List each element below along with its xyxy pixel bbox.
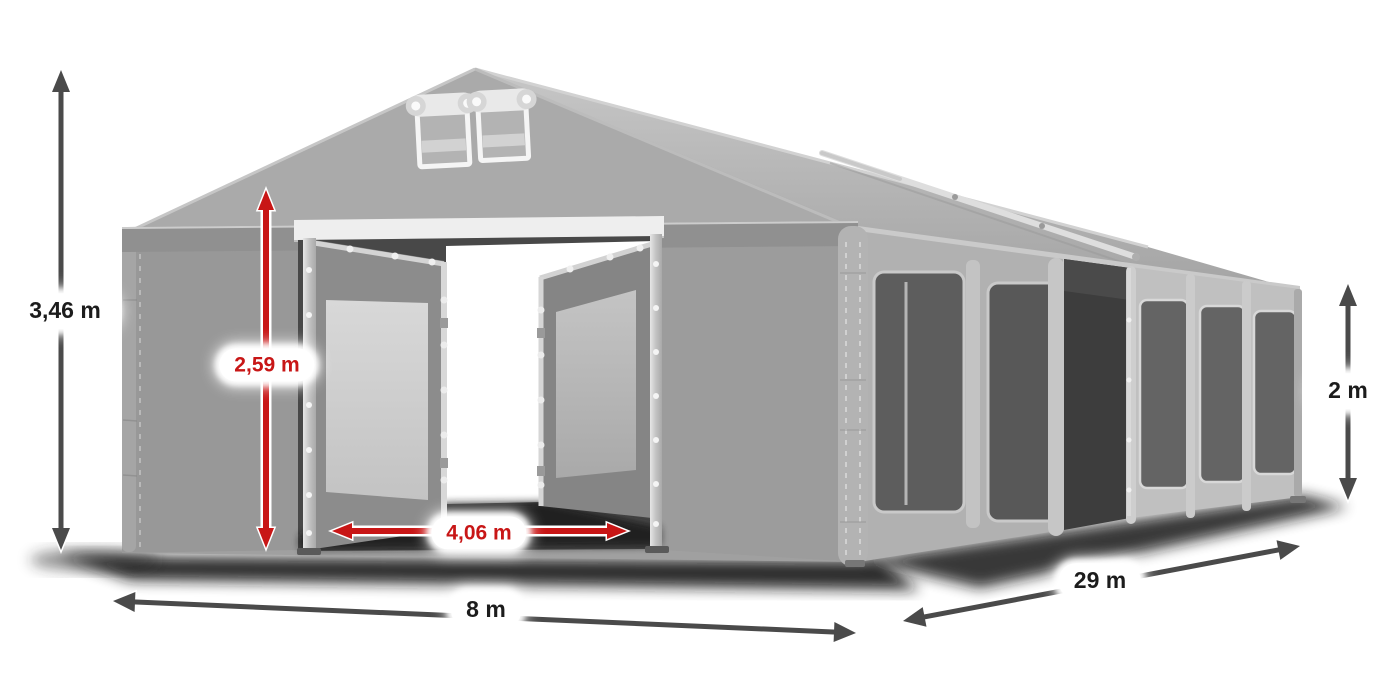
dimension-label-entrance-height: 2,59 m	[219, 348, 314, 381]
entrance-door-right	[537, 242, 652, 518]
door-window	[556, 290, 636, 478]
corner-seam	[838, 226, 868, 567]
door-window	[326, 300, 428, 500]
canvas: 3,46 m 2,59 m 4,06 m 8 m 29 m 2 m	[0, 0, 1400, 700]
dimension-label-entrance-width: 4,06 m	[431, 516, 526, 549]
dimension-label-length: 29 m	[1059, 563, 1141, 599]
bay-pole	[1127, 268, 1132, 516]
side-window	[1200, 306, 1245, 482]
dimension-label-ridge-height: 3,46 m	[14, 293, 116, 329]
side-section-front	[858, 231, 1064, 562]
tent-illustration	[0, 0, 1400, 700]
side-open-bay	[1064, 259, 1130, 530]
dimension-label-side-height: 2 m	[1313, 373, 1383, 409]
dimension-label-front-width: 8 m	[451, 592, 521, 628]
side-section-rear	[1126, 266, 1306, 524]
front-panel-left	[122, 236, 298, 553]
entrance-door-left	[314, 240, 448, 549]
side-window	[1254, 311, 1296, 474]
side-window	[874, 272, 964, 512]
front-panel-right	[662, 228, 858, 562]
side-window	[1140, 300, 1188, 488]
entrance	[297, 234, 669, 555]
